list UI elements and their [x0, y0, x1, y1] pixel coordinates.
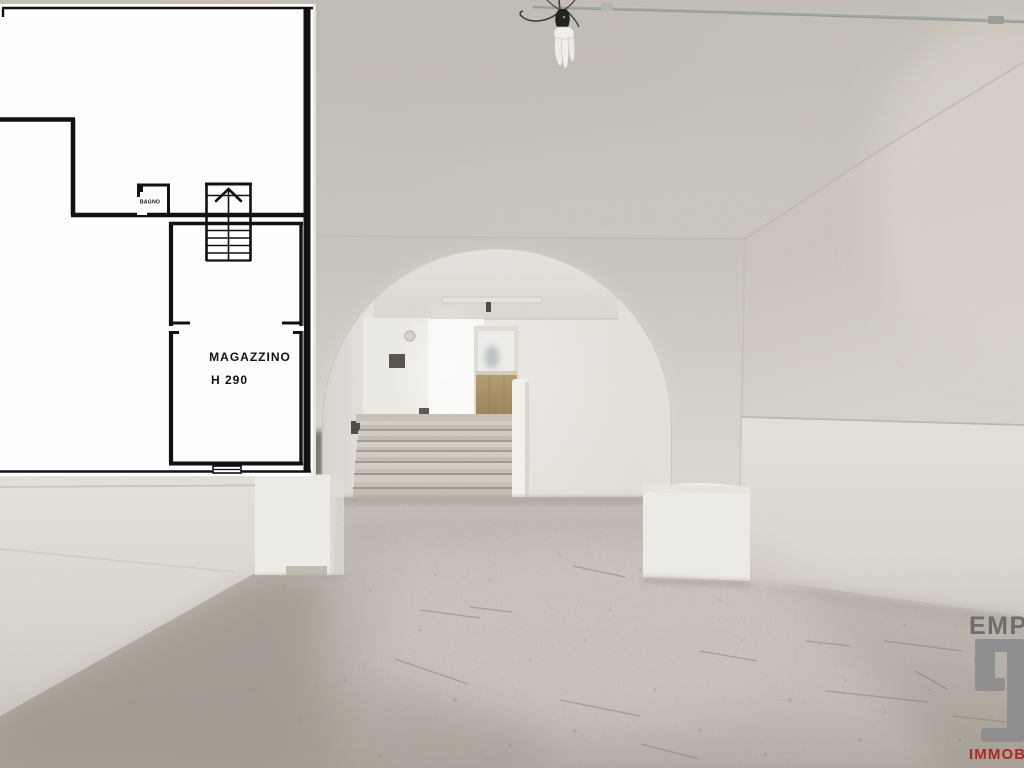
- svg-text:BAGNO: BAGNO: [140, 200, 160, 206]
- svg-text:IMMOBI: IMMOBI: [969, 746, 1024, 763]
- svg-text:EMPO: EMPO: [969, 612, 1024, 640]
- svg-text:H 290: H 290: [211, 373, 248, 387]
- svg-text:MAGAZZINO: MAGAZZINO: [209, 350, 291, 364]
